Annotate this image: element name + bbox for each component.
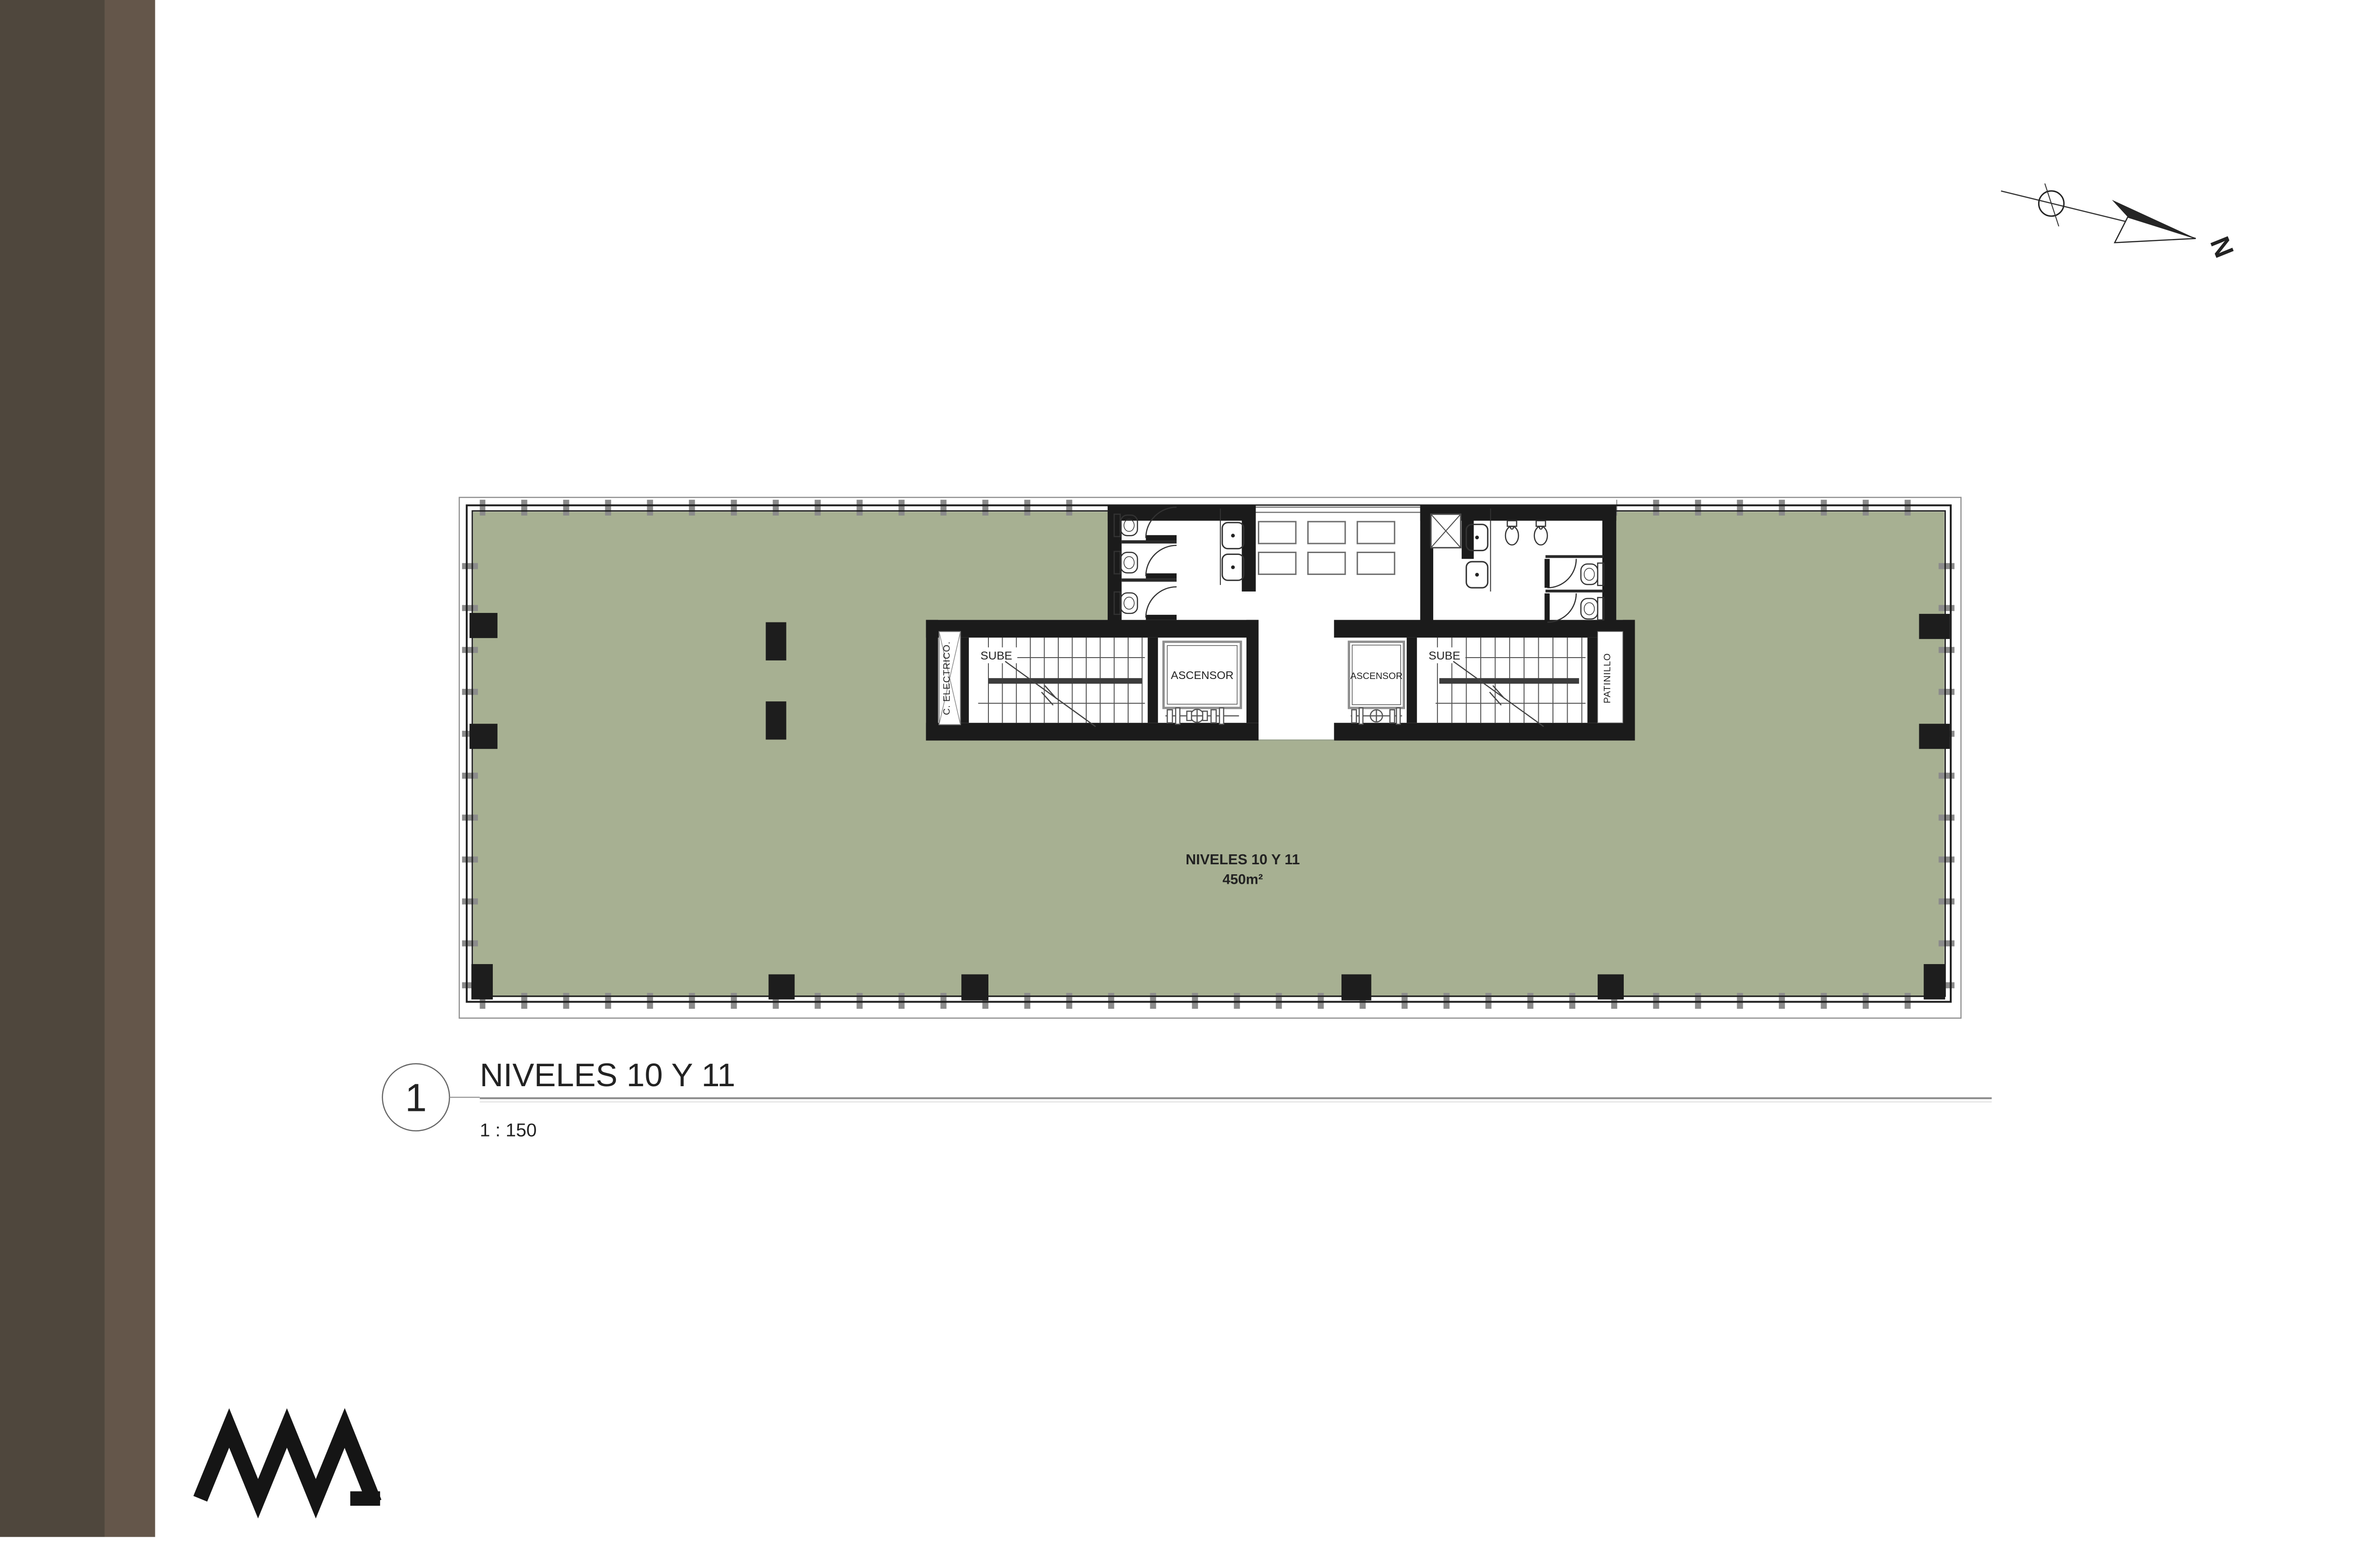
view-title: NIVELES 10 Y 11 — [480, 1057, 736, 1093]
area-label-line1: NIVELES 10 Y 11 — [1186, 851, 1300, 868]
elevator-right-label: ASCENSOR — [1351, 671, 1403, 681]
view-scale: 1 : 150 — [480, 1120, 537, 1141]
duct-shaft-icon — [1431, 514, 1461, 548]
patio-shaft: PATINILLO — [1598, 631, 1623, 723]
sidebar-dark-strip — [0, 0, 105, 1537]
electrical-shaft-label: C. ELECTRICO. — [942, 641, 952, 715]
stall-divider — [1121, 578, 1177, 582]
stall-divider — [1545, 555, 1603, 558]
electrical-shaft: C. ELECTRICO. — [939, 631, 960, 725]
stall-divider — [1545, 590, 1603, 593]
floor-plan: C. ELECTRICO. SUBE ASCENSOR — [459, 497, 1961, 1018]
detail-number: 1 — [405, 1076, 427, 1120]
sidebar-light-strip — [105, 0, 155, 1537]
elevator-left-label: ASCENSOR — [1171, 669, 1234, 681]
stair-landing-bar — [1439, 678, 1579, 684]
stair-landing-bar — [988, 678, 1142, 684]
area-label-line2: 450m² — [1223, 871, 1263, 887]
patio-shaft-label: PATINILLO — [1602, 653, 1613, 703]
stall-divider — [1121, 540, 1177, 544]
stair-left-label: SUBE — [980, 650, 1012, 662]
drawing-sheet: C. ELECTRICO. SUBE ASCENSOR — [0, 0, 2376, 1537]
stair-right-label: SUBE — [1428, 650, 1460, 662]
